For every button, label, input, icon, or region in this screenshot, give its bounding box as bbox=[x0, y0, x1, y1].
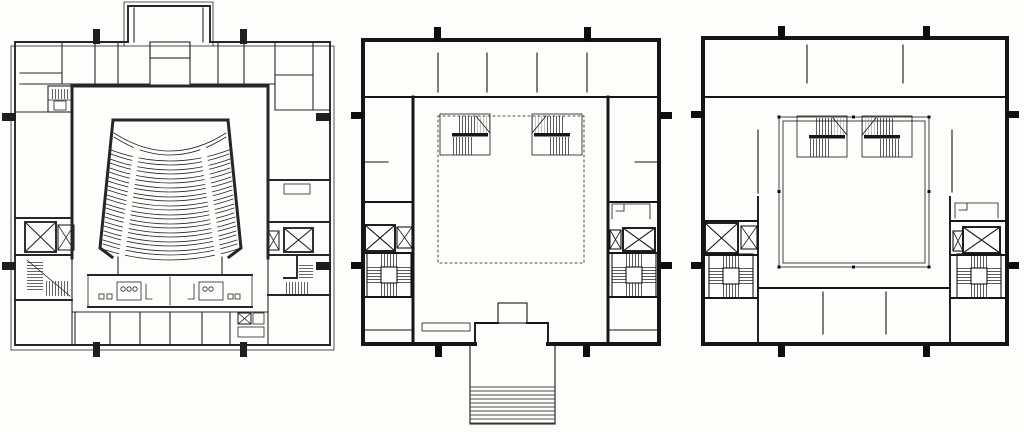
elevator-shaft-icon bbox=[268, 231, 279, 250]
plan-auditorium-level bbox=[2, 2, 334, 357]
wc-fixtures-left bbox=[99, 282, 152, 300]
fly-tower-offset-outline bbox=[124, 2, 213, 46]
column-ticks bbox=[351, 27, 672, 357]
corner-stair-icon bbox=[48, 86, 72, 112]
core-room-notch bbox=[955, 203, 998, 218]
bench bbox=[422, 323, 470, 331]
elevator-shaft-icon bbox=[623, 228, 655, 251]
vent-grille-icon bbox=[284, 184, 310, 194]
stage-vestibule bbox=[150, 42, 190, 58]
hall-side-walls bbox=[413, 97, 608, 344]
dogleg-stair-icon bbox=[27, 260, 70, 296]
dogleg-stair-icon bbox=[284, 257, 313, 294]
fly-tower bbox=[128, 6, 210, 42]
column-ticks bbox=[691, 26, 1019, 357]
radial-aisles bbox=[121, 147, 219, 262]
core-room-notch bbox=[612, 204, 650, 219]
elevator-shaft-icon bbox=[610, 230, 621, 249]
scissor-stair-icon bbox=[709, 254, 753, 298]
elevator-shaft-icon bbox=[963, 227, 1000, 253]
elevator-shaft-icon bbox=[397, 227, 412, 248]
apron-curve bbox=[114, 133, 226, 155]
wc-service-band bbox=[88, 257, 252, 307]
auditorium-splay-wall-left bbox=[100, 120, 113, 257]
return-stair-icon bbox=[862, 116, 912, 157]
floor-plan-sheet bbox=[0, 0, 1024, 432]
floor-plans-drawing bbox=[0, 0, 1024, 432]
elevator-shaft-icon bbox=[365, 225, 395, 251]
scissor-stair-icon bbox=[367, 253, 411, 297]
return-stair-icon bbox=[440, 114, 490, 155]
wc-fixtures-right bbox=[188, 282, 240, 300]
elevator-shaft-icon bbox=[25, 222, 56, 252]
return-stair-icon bbox=[532, 114, 582, 155]
perimeter-rooms-bottom bbox=[72, 312, 268, 345]
plan-balcony-level bbox=[691, 26, 1019, 357]
elevator-shaft-icon bbox=[284, 228, 313, 252]
service-shaft-icon bbox=[238, 313, 264, 337]
top-band-partitions bbox=[807, 45, 903, 83]
plan-foyer-level bbox=[351, 27, 672, 424]
exterior-walls bbox=[363, 40, 659, 344]
entrance-vestibule bbox=[470, 303, 555, 424]
elevator-shaft-icon bbox=[741, 226, 757, 249]
scissor-stair-icon bbox=[957, 254, 1001, 298]
rear-room-partitions bbox=[823, 292, 886, 334]
return-stair-icon bbox=[797, 116, 847, 157]
auditorium-seating-rows bbox=[102, 133, 238, 262]
elevator-shaft-icon bbox=[705, 223, 738, 253]
entrance-steps bbox=[471, 387, 554, 423]
void-outline bbox=[778, 116, 931, 269]
auditorium-splay-wall-right bbox=[228, 120, 241, 257]
top-band-partitions bbox=[438, 53, 587, 92]
elevator-shaft-icon bbox=[953, 231, 963, 251]
scissor-stair-icon bbox=[612, 253, 656, 297]
